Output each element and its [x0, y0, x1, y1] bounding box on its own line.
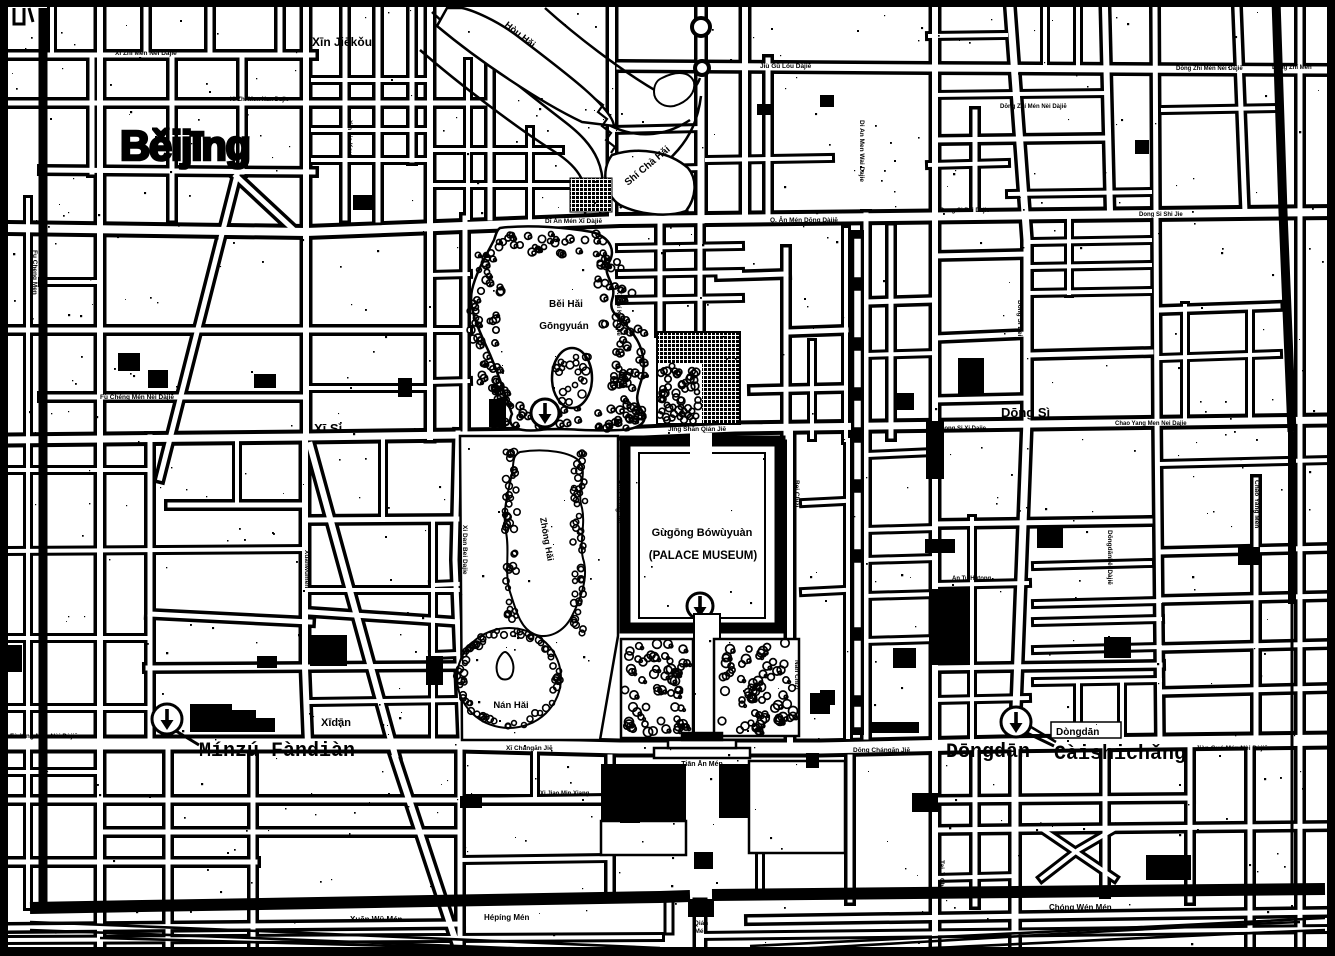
svg-text:Fù Xīng Mén Nèi Dàjiē: Fù Xīng Mén Nèi Dàjiē: [10, 733, 78, 740]
svg-text:Chao Yang Men Nei Dajie: Chao Yang Men Nei Dajie: [1115, 421, 1187, 427]
svg-text:Jiù Gǔ Lóu Dàjiē: Jiù Gǔ Lóu Dàjiē: [760, 63, 812, 70]
svg-text:Di An Men Wai Dajie: Di An Men Wai Dajie: [858, 120, 865, 182]
svg-text:Chóng Wén Mén: Chóng Wén Mén: [1049, 903, 1112, 912]
svg-text:Dōng Sì: Dōng Sì: [1001, 405, 1050, 420]
svg-text:Qián: Qián: [694, 920, 708, 927]
svg-text:Dong Si Bei Dajie: Dong Si Bei Dajie: [940, 208, 990, 214]
svg-text:Xī Sì: Xī Sì: [314, 421, 342, 436]
svg-text:Dōng Zhí Mén Nèi Dàjiē: Dōng Zhí Mén Nèi Dàjiē: [1000, 104, 1067, 110]
svg-text:Dòngdān: Dòngdān: [1056, 727, 1099, 738]
svg-text:Xi Zhi Men Nan Dajie: Xi Zhi Men Nan Dajie: [230, 97, 290, 103]
svg-text:(PALACE MUSEUM): (PALACE MUSEUM): [649, 550, 758, 562]
svg-text:Dī Ān Mén Xī Dàjiē: Dī Ān Mén Xī Dàjiē: [545, 217, 602, 225]
svg-text:Bei Chizi: Bei Chizi: [793, 480, 800, 508]
svg-text:Jiàn Guó Mén Nèi Dàjiē: Jiàn Guó Mén Nèi Dàjiē: [1196, 745, 1268, 752]
svg-text:Q. Ān Mén Dōng Dàjiē: Q. Ān Mén Dōng Dàjiē: [770, 216, 838, 224]
svg-text:Chao Yang Men: Chao Yang Men: [1253, 480, 1260, 528]
svg-text:Běijīng: Běijīng: [120, 122, 250, 169]
svg-text:Dong Si Xi Dajie: Dong Si Xi Dajie: [940, 426, 987, 432]
svg-text:Dong Si Bei: Dong Si Bei: [1016, 300, 1023, 337]
svg-text:Dōngdānběi Dàjiē: Dōngdānběi Dàjiē: [1106, 530, 1113, 585]
svg-text:Bei Chang Jie: Bei Chang Jie: [615, 480, 622, 523]
svg-text:Fù Chéng Mén Nèi Dàjiē: Fù Chéng Mén Nèi Dàjiē: [100, 394, 174, 401]
svg-text:Tiān Ān Mén: Tiān Ān Mén: [681, 760, 722, 768]
svg-text:Fu Cheng Men: Fu Cheng Men: [31, 250, 38, 295]
svg-text:Tai Ji Chang: Tai Ji Chang: [938, 860, 945, 898]
svg-text:Nán Hǎi: Nán Hǎi: [493, 700, 528, 711]
svg-text:Xin Jie Kou: Xin Jie Kou: [346, 120, 353, 155]
svg-text:Nan Chizi: Nan Chizi: [793, 660, 800, 690]
svg-text:Běi Hǎi: Běi Hǎi: [549, 299, 583, 310]
svg-text:Jǐng Shān Qián Jiē: Jǐng Shān Qián Jiē: [668, 426, 727, 433]
svg-text:Xīn Jiēkǒu: Xīn Jiēkǒu: [312, 35, 372, 49]
svg-text:An Tu Hutong: An Tu Hutong: [952, 576, 992, 582]
svg-text:Xī Zhí Mén Nèi Dàjiē: Xī Zhí Mén Nèi Dàjiē: [115, 50, 177, 57]
svg-text:Càishichǎng: Càishichǎng: [1054, 743, 1186, 766]
svg-text:Gùgōng Bówùyuàn: Gùgōng Bówùyuàn: [652, 527, 753, 539]
svg-text:Mén: Mén: [695, 928, 708, 935]
svg-text:Dōng Zhí Mén: Dōng Zhí Mén: [1272, 65, 1312, 71]
svg-text:Dōngdān: Dōngdān: [946, 741, 1030, 764]
svg-text:Dōng Chángān Jiē: Dōng Chángān Jiē: [853, 747, 910, 754]
svg-text:Xī Chángān Jiē: Xī Chángān Jiē: [506, 745, 553, 752]
svg-text:Xi Dan Bei Dajie: Xi Dan Bei Dajie: [461, 525, 468, 575]
svg-text:Xuān Wǔ Mén: Xuān Wǔ Mén: [350, 915, 403, 924]
svg-text:Xī Shí Kù Dàjiē: Xī Shí Kù Dàjiē: [615, 290, 622, 336]
svg-text:Xi Jiao Min Xiang: Xi Jiao Min Xiang: [540, 791, 590, 797]
svg-text:Xuanwumen: Xuanwumen: [303, 550, 310, 588]
svg-text:Dōng Zhí Mén Nèi Dàjiē: Dōng Zhí Mén Nèi Dàjiē: [1176, 66, 1243, 72]
svg-text:Hépíng Mén: Hépíng Mén: [484, 913, 529, 922]
svg-text:Mínzú Fàndiàn: Mínzú Fàndiàn: [199, 740, 355, 763]
svg-text:Xīdān: Xīdān: [321, 717, 351, 729]
svg-text:Gōngyuán: Gōngyuán: [539, 321, 588, 332]
svg-text:Dong Si Shi Jie: Dong Si Shi Jie: [1139, 212, 1183, 218]
